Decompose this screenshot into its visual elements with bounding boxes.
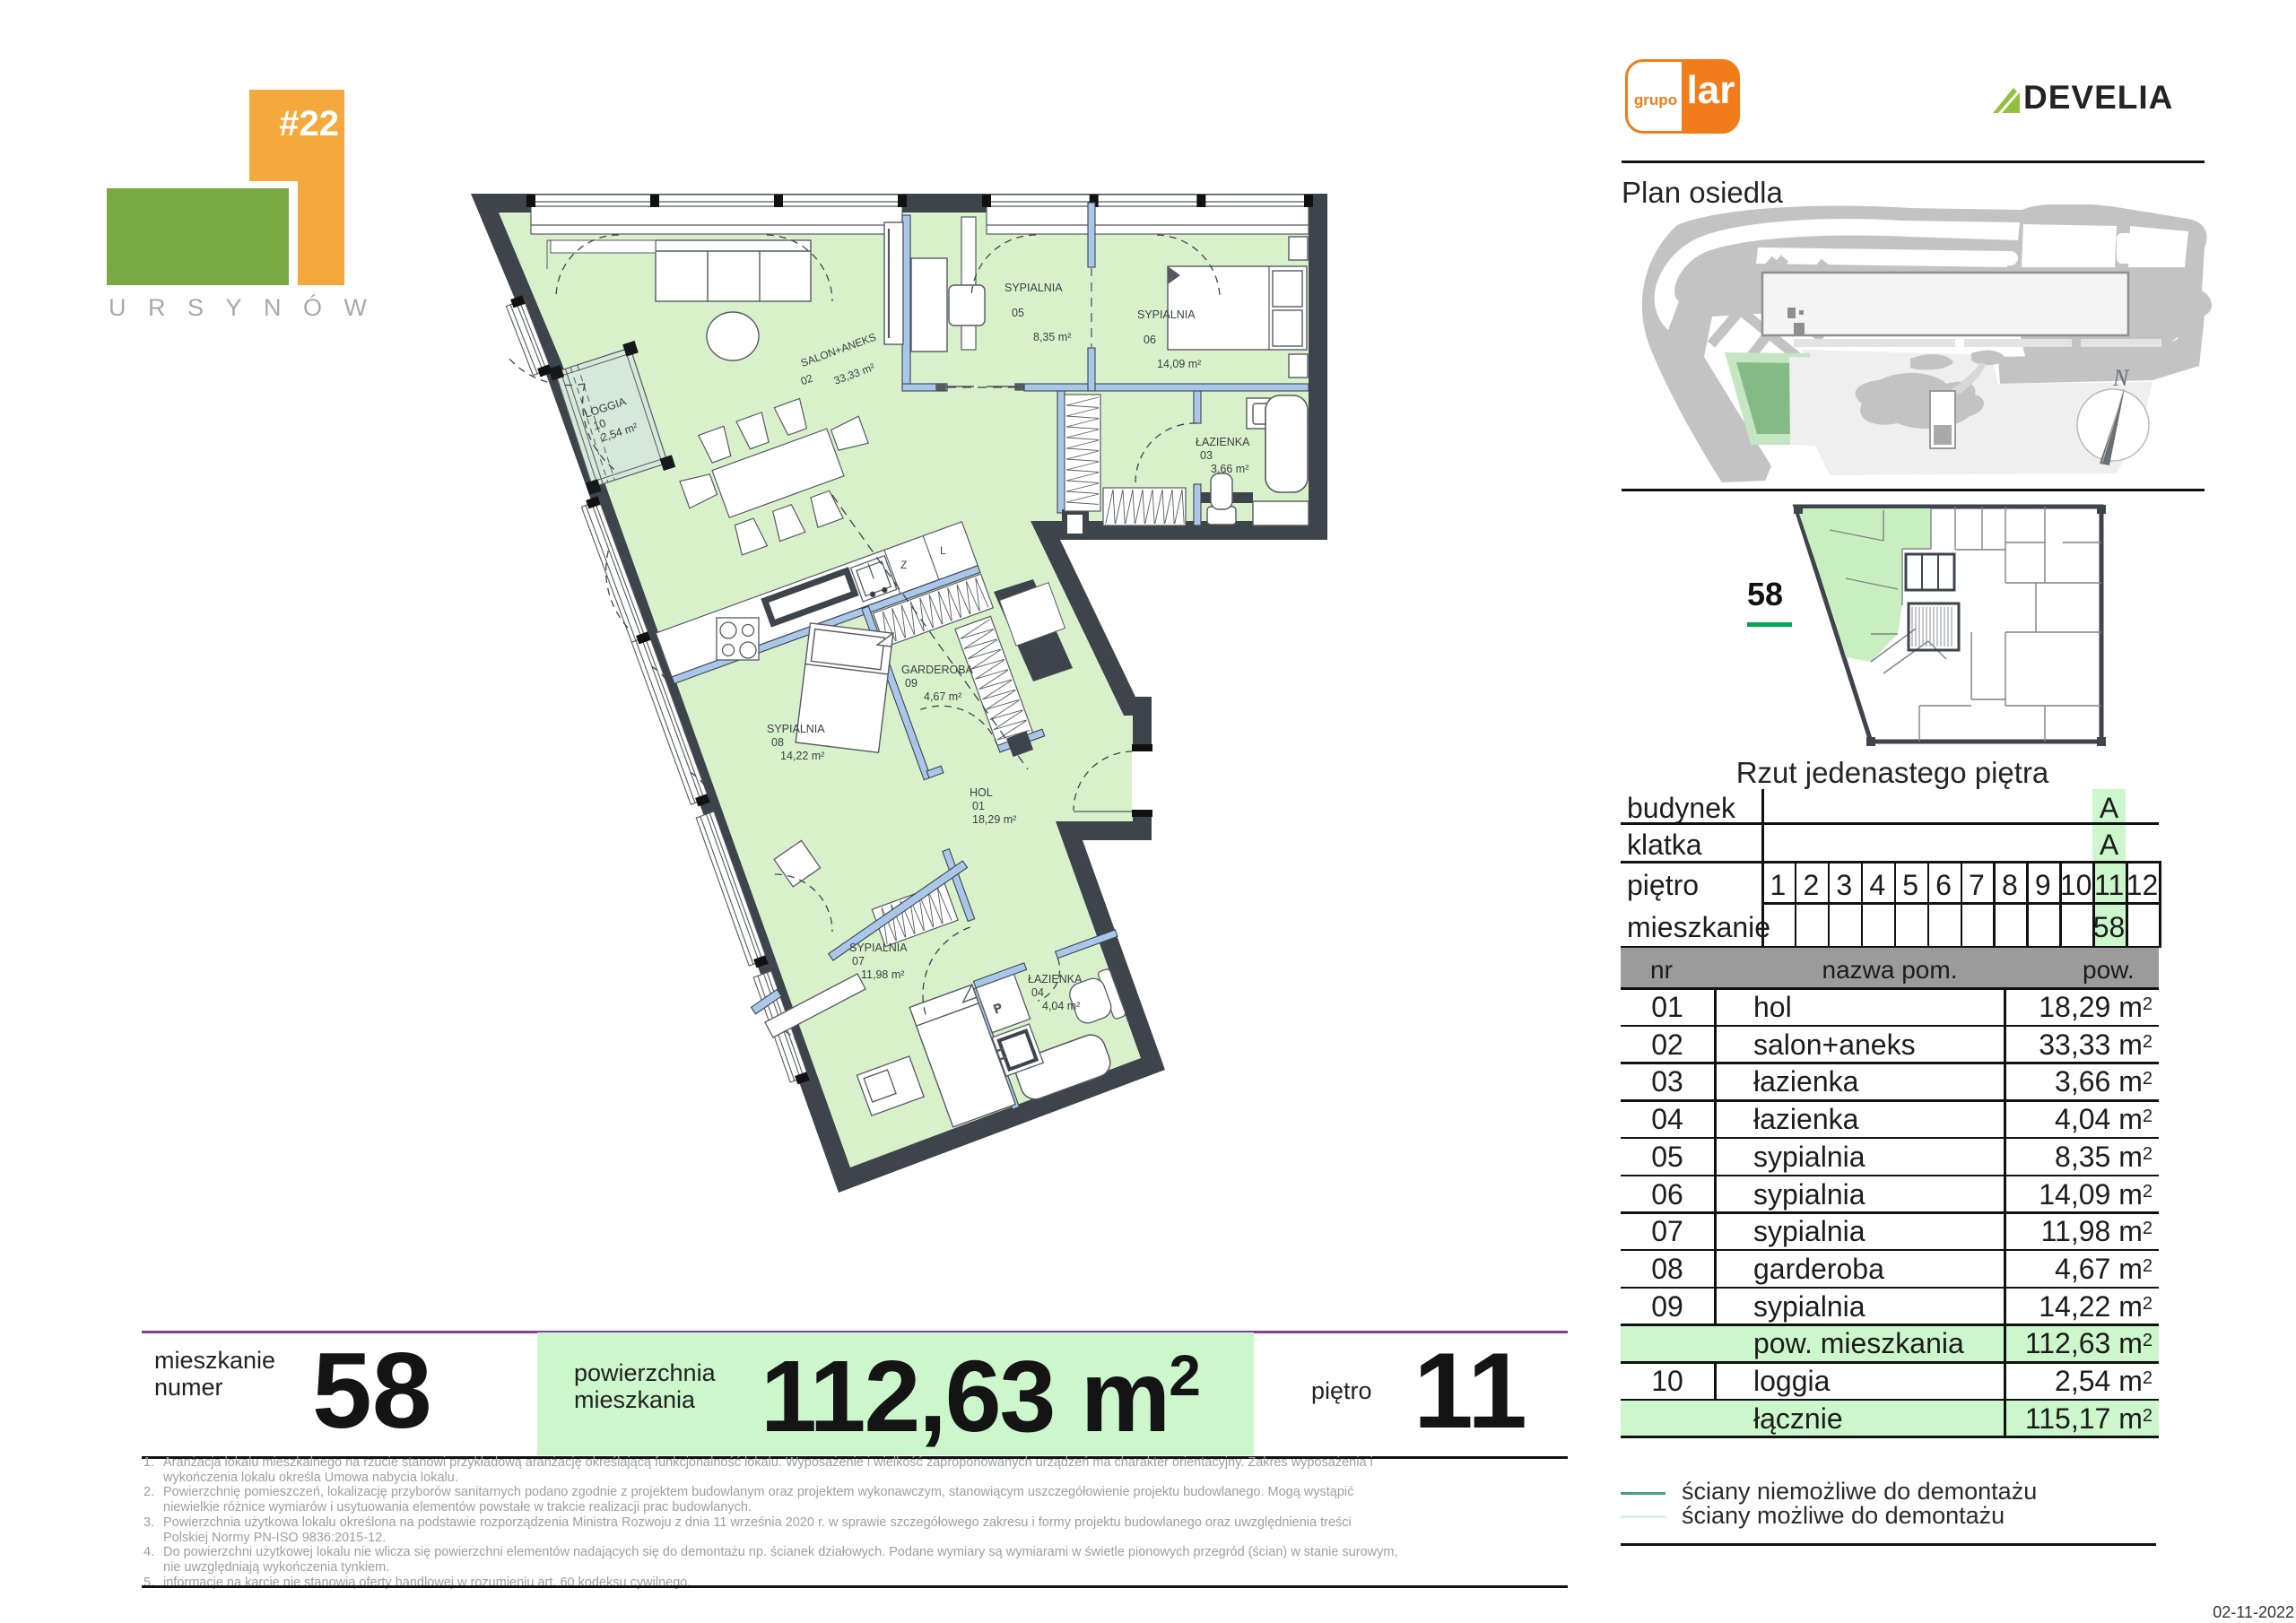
svg-text:4,04 m²: 4,04 m² (1042, 1000, 1080, 1012)
svg-text:02: 02 (799, 372, 815, 388)
svg-text:09: 09 (905, 677, 918, 690)
svg-text:04: 04 (1031, 986, 1044, 999)
svg-text:18,29 m²: 18,29 m² (972, 813, 1016, 826)
svg-text:8,35 m²: 8,35 m² (1033, 331, 1071, 343)
svg-text:08: 08 (771, 736, 784, 749)
svg-text:07: 07 (852, 955, 865, 968)
svg-text:L: L (940, 544, 946, 557)
svg-text:4,67 m²: 4,67 m² (924, 690, 961, 703)
svg-text:03: 03 (1200, 449, 1213, 462)
svg-text:SYPIALNIA: SYPIALNIA (849, 942, 908, 954)
svg-text:14,22 m²: 14,22 m² (780, 750, 824, 762)
svg-text:Z: Z (900, 559, 907, 571)
svg-text:SYPIALNIA: SYPIALNIA (767, 723, 825, 735)
svg-text:06: 06 (1144, 334, 1156, 346)
svg-text:SYPIALNIA: SYPIALNIA (1137, 308, 1196, 321)
svg-text:33,33 m²: 33,33 m² (832, 360, 876, 386)
svg-text:ŁAZIENKA: ŁAZIENKA (1028, 973, 1083, 985)
svg-text:11,98 m²: 11,98 m² (861, 968, 904, 981)
svg-text:GARDEROBA: GARDEROBA (901, 664, 974, 676)
svg-text:ŁAZIENKA: ŁAZIENKA (1196, 436, 1250, 448)
svg-text:SYPIALNIA: SYPIALNIA (1004, 282, 1063, 294)
svg-text:14,09 m²: 14,09 m² (1157, 358, 1201, 370)
svg-text:05: 05 (1012, 307, 1024, 319)
svg-text:3,66 m²: 3,66 m² (1211, 463, 1248, 475)
svg-text:01: 01 (972, 800, 985, 812)
svg-text:HOL: HOL (970, 786, 993, 799)
